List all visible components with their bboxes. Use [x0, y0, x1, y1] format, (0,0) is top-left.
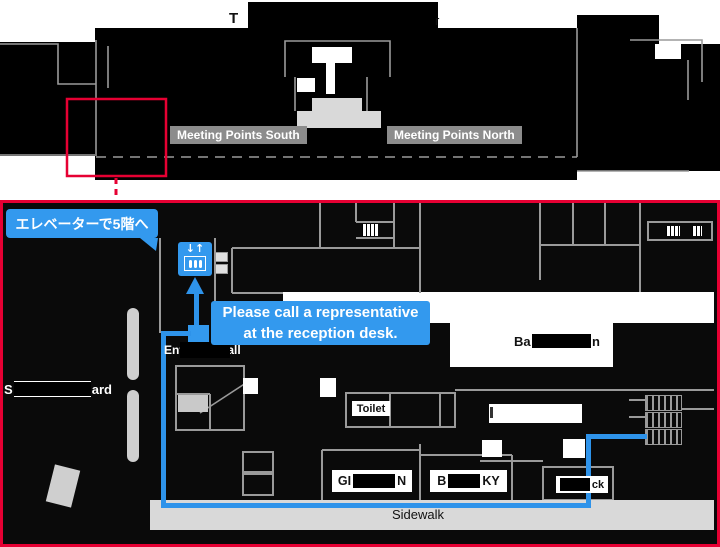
shop-right-suffix: KY [482, 474, 499, 488]
road-label-suffix: ard [92, 382, 112, 397]
dock-label-suffix: ck [592, 479, 604, 491]
redacted-label [489, 404, 582, 423]
redaction-box [560, 478, 590, 491]
route-line [194, 293, 199, 327]
restaurant-label-prefix: Ba [514, 334, 531, 349]
redacted-label-fragment [490, 407, 493, 418]
stairs-icon [645, 429, 682, 445]
elevator-car [184, 256, 206, 271]
reception-callout-line1: Please call a representative [223, 302, 419, 323]
road-label-prefix: S [4, 382, 13, 397]
reception-callout-line2: at the reception desk. [243, 323, 397, 344]
elevator-callout-text: エレベーターで5階へ [16, 214, 149, 234]
floorplan-lines [0, 0, 720, 547]
toilet-label-text: Toilet [357, 403, 386, 415]
route-line [161, 503, 590, 508]
redacted-label-fragment [320, 378, 336, 397]
callout-tail [140, 238, 158, 251]
redacted-label-fragment [243, 378, 258, 394]
dock-label: ck [556, 476, 608, 493]
route-line [586, 436, 591, 508]
person-glyph [189, 260, 192, 268]
redaction-box [532, 334, 591, 348]
ev-marker-icon [692, 226, 702, 236]
elevator-icon: ↓↑ [178, 242, 212, 276]
elevator-arrows: ↓↑ [178, 242, 212, 255]
person-glyph [199, 260, 202, 268]
access-map: T r Meeting Points South Meeting Points … [0, 0, 720, 547]
shop-left-prefix: GI [338, 474, 351, 488]
elevator-callout: エレベーターで5階へ [6, 209, 158, 238]
elevator-shaft [215, 252, 228, 262]
road-label: S ard [4, 380, 112, 398]
road-stripe [127, 390, 139, 462]
elevator-shaft [215, 264, 228, 274]
planter-block [178, 395, 208, 412]
shop-right-prefix: B [437, 474, 446, 488]
shop-label-left: GI N [332, 470, 412, 492]
redaction-box [353, 474, 395, 488]
redacted-label-fragment [482, 440, 502, 457]
person-glyph [194, 260, 197, 268]
restaurant-label-suffix: n [592, 334, 600, 349]
route-arrow-head [186, 277, 204, 294]
route-line [586, 434, 647, 439]
stairs-icon [645, 395, 682, 411]
entrance-marker [188, 325, 209, 343]
road-stripe [127, 308, 139, 380]
shop-label-right: B KY [430, 470, 507, 492]
redaction-box [448, 474, 480, 488]
sidewalk-label: Sidewalk [392, 507, 444, 522]
redacted-label-fragment [563, 439, 585, 458]
shop-left-suffix: N [397, 474, 406, 488]
toilet-label: Toilet [352, 401, 390, 416]
route-line [161, 331, 166, 508]
stairs-icon [645, 412, 682, 428]
ev-marker-icon [666, 226, 680, 236]
restaurant-label: Ba n [514, 332, 600, 350]
ev-marker-icon [362, 224, 378, 236]
redaction-box [14, 381, 91, 397]
reception-callout: Please call a representative at the rece… [211, 301, 430, 345]
